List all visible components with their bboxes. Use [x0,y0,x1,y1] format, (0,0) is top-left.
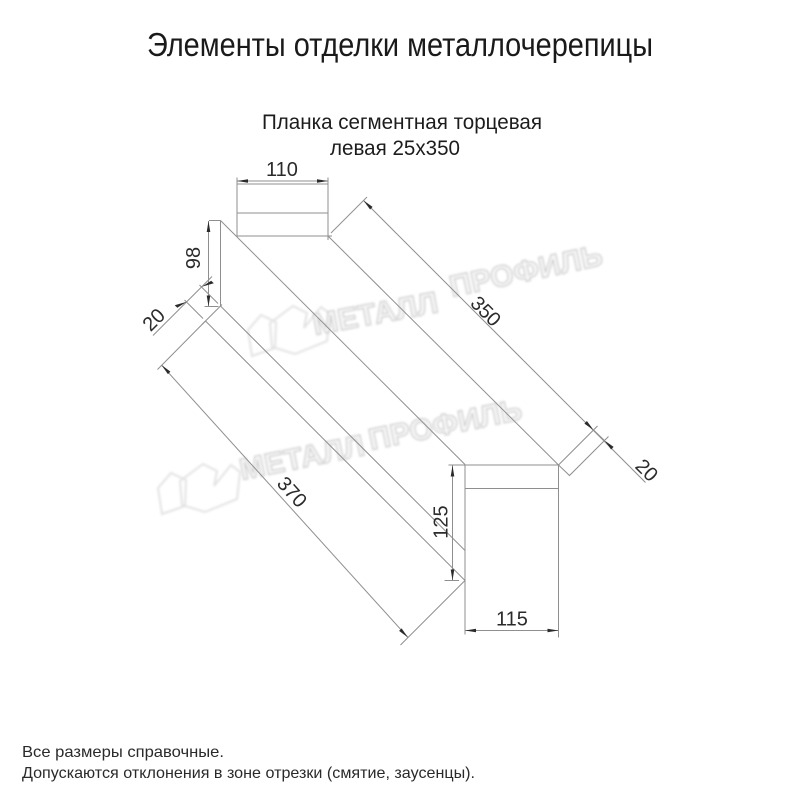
svg-text:левая 25х350: левая 25х350 [330,137,460,160]
svg-text:Допускаются отклонения в зоне: Допускаются отклонения в зоне отрезки (с… [22,765,475,782]
svg-text:Элементы отделки металлочерепи: Элементы отделки металлочерепицы [147,26,653,63]
svg-text:125: 125 [431,505,453,538]
svg-text:115: 115 [496,609,528,631]
svg-text:110: 110 [266,159,298,181]
svg-text:Все размеры справочные.: Все размеры справочные. [22,744,224,761]
svg-text:98: 98 [183,247,205,269]
svg-text:Планка сегментная торцевая: Планка сегментная торцевая [262,111,542,134]
